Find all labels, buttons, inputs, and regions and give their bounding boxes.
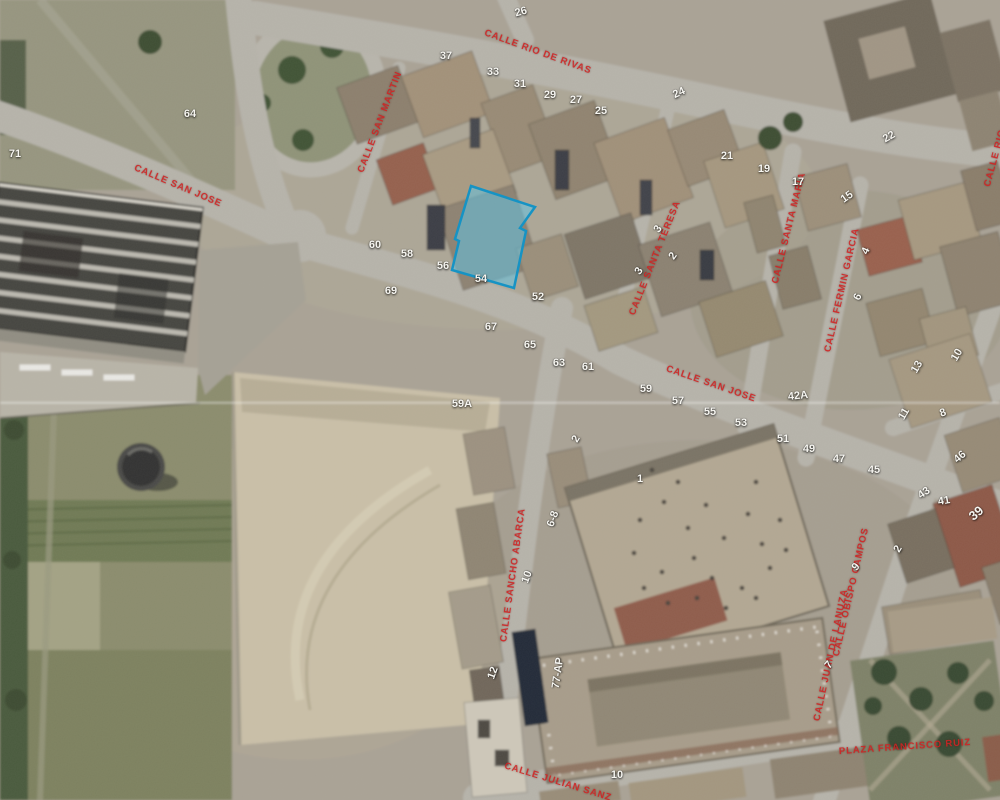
aerial-map-viewport[interactable]: CALLE RIO DE RIVASCALLE SAN JOSECALLE SA… — [0, 0, 1000, 800]
satellite-basemap — [0, 0, 1000, 800]
noise-overlay — [0, 0, 1000, 800]
